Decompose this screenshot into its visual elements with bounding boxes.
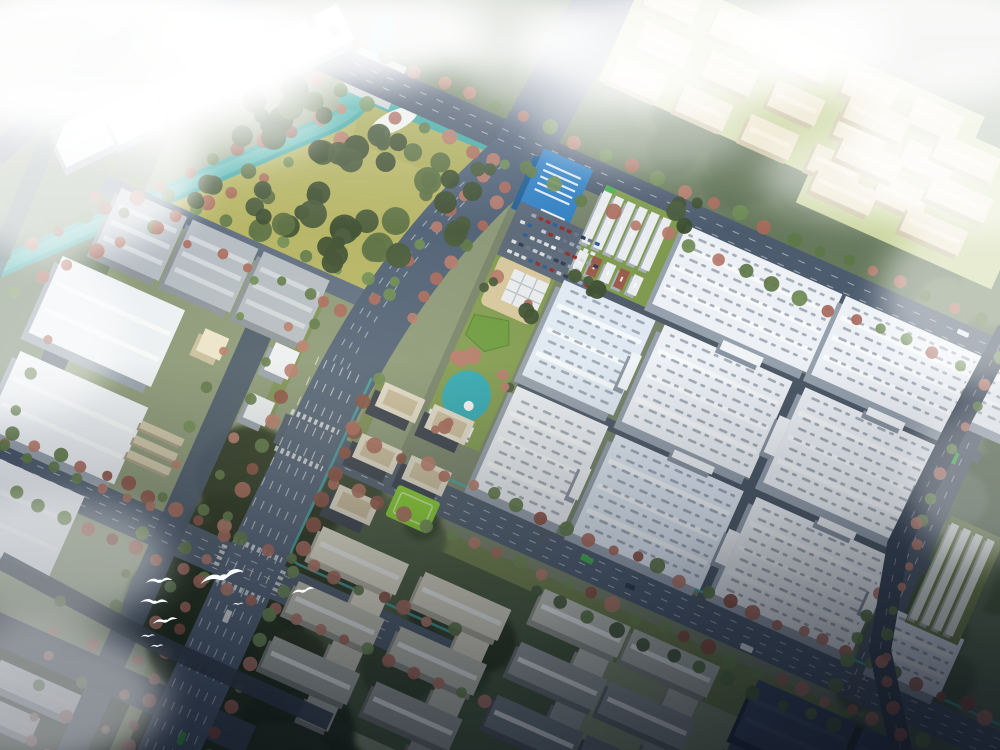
aerial-rendering: Aerial rendering of an industrial park m… — [0, 0, 1000, 750]
mist-cloud — [760, 130, 980, 220]
mist-cloud — [90, 65, 330, 165]
scene-canvas: Aerial rendering of an industrial park m… — [0, 0, 1000, 750]
mist-cloud — [530, 90, 750, 170]
